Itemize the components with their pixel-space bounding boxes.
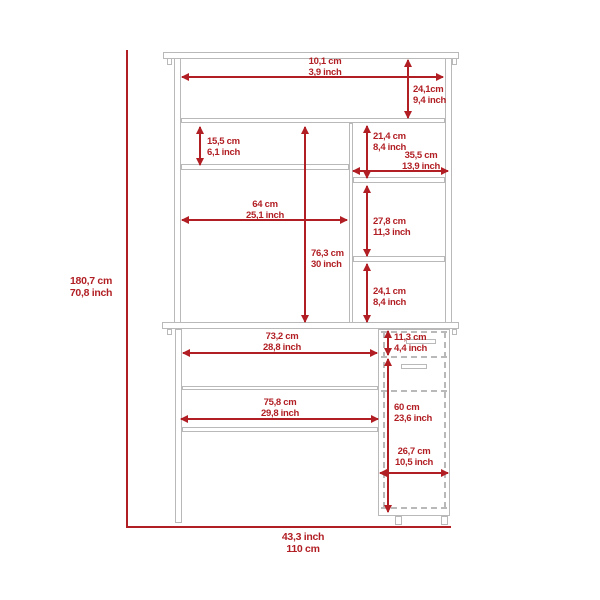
dim-value-metric: 10,1 cm xyxy=(285,56,365,67)
dim-value-metric: 60 cm xyxy=(394,402,432,413)
pedestal-leg-left xyxy=(395,516,402,525)
dim-value-metric: 24,1 cm xyxy=(373,286,406,297)
dim-value-imperial: 6,1 inch xyxy=(207,147,240,158)
dim-value-imperial: 25,1 inch xyxy=(225,210,305,221)
dim-value-metric: 73,2 cm xyxy=(242,331,322,342)
arrow-hutch-top-height xyxy=(407,60,409,118)
pedestal-dashed-right xyxy=(444,332,446,508)
dim-value-imperial: 29,8 inch xyxy=(240,408,320,419)
dim-value-imperial: 9,4 inch xyxy=(413,95,446,106)
arrow-right-mid xyxy=(366,186,368,256)
dim-label-hutch-top-height: 24,1cm 9,4 inch xyxy=(413,84,446,106)
keyboard-tray xyxy=(182,386,378,390)
dim-value-metric: 26,7 cm xyxy=(380,446,448,457)
pedestal-leg-right xyxy=(441,516,448,525)
dim-value-metric: 11,3 cm xyxy=(394,332,427,343)
drawer-handle-second xyxy=(401,364,427,369)
lower-shelf xyxy=(182,427,378,432)
dim-label-shelf-width: 75,8 cm 29,8 inch xyxy=(240,397,320,419)
dim-label-right-low: 24,1 cm 8,4 inch xyxy=(373,286,406,308)
overall-height-line xyxy=(126,50,128,528)
hutch-left-panel xyxy=(174,58,181,323)
dim-label-desktop-width: 73,2 cm 28,8 inch xyxy=(242,331,322,353)
dim-value-imperial: 10,5 inch xyxy=(380,457,448,468)
dim-value-imperial: 11,3 inch xyxy=(373,227,410,238)
desk-surface-lip-left xyxy=(167,329,172,335)
dim-value-metric: 21,4 cm xyxy=(373,131,406,142)
dim-value-imperial: 43,3 inch xyxy=(263,531,343,543)
dim-value-metric: 64 cm xyxy=(225,199,305,210)
desk-surface-lip-right xyxy=(452,329,457,335)
dim-value-imperial: 70,8 inch xyxy=(60,287,122,299)
desk-surface xyxy=(162,322,459,329)
dim-value-metric: 24,1cm xyxy=(413,84,446,95)
overall-width-line xyxy=(126,526,451,528)
arrow-pedestal-width xyxy=(380,472,448,474)
dim-value-imperial: 13,9 inch xyxy=(385,161,457,172)
desk-left-leg xyxy=(175,329,182,523)
dim-label-pedestal-width: 26,7 cm 10,5 inch xyxy=(380,446,448,468)
dim-value-imperial: 23,6 inch xyxy=(394,413,432,424)
dim-value-metric: 75,8 cm xyxy=(240,397,320,408)
dim-label-hutch-height: 76,3 cm 30 inch xyxy=(311,248,344,270)
arrow-left-cubby xyxy=(199,127,201,165)
dim-value-imperial: 28,8 inch xyxy=(242,342,322,353)
arrow-hutch-height xyxy=(304,127,306,322)
dim-value-imperial: 8,4 inch xyxy=(373,297,406,308)
dim-value-metric: 15,5 cm xyxy=(207,136,240,147)
dim-value-imperial: 30 inch xyxy=(311,259,344,270)
pedestal-dashed-mid xyxy=(381,390,447,392)
arrow-pedestal-height xyxy=(387,359,389,512)
arrow-right-low xyxy=(366,264,368,322)
dim-label-left-cubby: 15,5 cm 6,1 inch xyxy=(207,136,240,158)
dim-label-top-depth: 10,1 cm 3,9 inch xyxy=(285,56,365,78)
dim-value-metric: 180,7 cm xyxy=(60,275,122,287)
dim-value-imperial: 4,4 inch xyxy=(394,343,427,354)
dim-label-drawer-height: 11,3 cm 4,4 inch xyxy=(394,332,427,354)
arrow-drawer-height xyxy=(387,331,389,355)
dim-value-metric: 110 cm xyxy=(263,543,343,555)
furniture-dimension-diagram: 10,1 cm 3,9 inch 24,1cm 9,4 inch 15,5 cm… xyxy=(0,0,600,600)
dim-value-metric: 76,3 cm xyxy=(311,248,344,259)
dim-value-metric: 35,5 cm xyxy=(385,150,457,161)
hutch-center-divider xyxy=(349,123,353,323)
dim-value-metric: 27,8 cm xyxy=(373,216,410,227)
dim-label-right-width: 35,5 cm 13,9 inch xyxy=(385,150,457,172)
dim-label-pedestal-height: 60 cm 23,6 inch xyxy=(394,402,432,424)
hutch-right-panel xyxy=(445,58,452,323)
dim-label-overall-height: 180,7 cm 70,8 inch xyxy=(60,275,122,299)
hutch-left-shelf xyxy=(181,164,349,170)
dim-label-right-mid: 27,8 cm 11,3 inch xyxy=(373,216,410,238)
dim-label-overall-width: 43,3 inch 110 cm xyxy=(263,531,343,555)
dim-label-left-width: 64 cm 25,1 inch xyxy=(225,199,305,221)
dim-value-imperial: 3,9 inch xyxy=(285,67,365,78)
